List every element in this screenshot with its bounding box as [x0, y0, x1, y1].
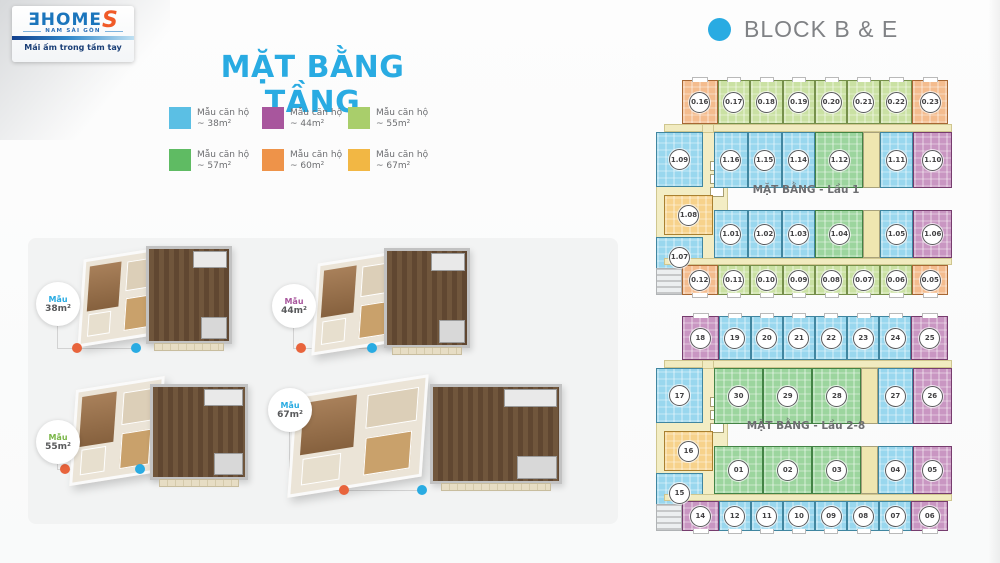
- unit-number: 0.06: [886, 270, 907, 291]
- apartment-unit[interactable]: 20: [751, 316, 783, 360]
- legend-item: Mẫu căn hộ ~ 38m²: [169, 107, 262, 149]
- legend-color-swatch: [169, 149, 191, 171]
- model-55m2: Mẫu 55m²: [28, 238, 618, 524]
- apartment-unit[interactable]: 08: [847, 501, 879, 531]
- apartment-unit[interactable]: 0.18: [750, 80, 782, 124]
- apartment-unit[interactable]: 0.12: [682, 265, 718, 295]
- apartment-unit[interactable]: 1.12: [815, 132, 863, 188]
- service-annex: [656, 268, 682, 295]
- unit-number: 1.12: [829, 150, 850, 171]
- floorplan-lau-2-8: 18 19 20 21 22 23 24 25 17 16 15 30 29 2…: [656, 314, 952, 532]
- apartment-unit[interactable]: 1.16: [714, 132, 748, 188]
- unit-number: 28: [826, 386, 847, 407]
- apartment-unit[interactable]: 09: [815, 501, 847, 531]
- model-67-2d-plan: [430, 384, 562, 484]
- unit-number: 1.01: [720, 224, 741, 245]
- apartment-unit[interactable]: 0.09: [783, 265, 815, 295]
- unit-number: 21: [788, 328, 809, 349]
- blue-marker-dot: [367, 343, 377, 353]
- apartment-unit[interactable]: 1.02: [748, 210, 782, 258]
- unit-number: 0.22: [886, 92, 907, 113]
- unit-number: 17: [669, 385, 690, 406]
- apartment-unit[interactable]: 1.10: [913, 132, 952, 188]
- legend-label: Mẫu căn hộ ~ 38m²: [197, 107, 249, 130]
- unit-number: 1.09: [669, 149, 690, 170]
- apartment-unit[interactable]: 0.06: [880, 265, 912, 295]
- unit-number: 20: [756, 328, 777, 349]
- connector-line: [57, 464, 58, 470]
- unit-number: 30: [728, 386, 749, 407]
- unit-number: 0.10: [756, 270, 777, 291]
- unit-row-lower: 1.01 1.02 1.03 1.04 1.05 1.06: [714, 210, 952, 258]
- unit-number: 1.03: [788, 224, 809, 245]
- unit-number: 0.05: [920, 270, 941, 291]
- logo-region-text: NAM SÀI GÒN: [45, 28, 100, 34]
- unit-number: 15: [669, 483, 690, 504]
- apartment-unit[interactable]: 18: [682, 316, 719, 360]
- unit-number: 04: [885, 460, 906, 481]
- unit-number: 29: [777, 386, 798, 407]
- unit-number: 1.07: [669, 247, 690, 268]
- apartment-unit[interactable]: 0.07: [847, 265, 879, 295]
- model-38m2: Mẫu 38m²: [28, 238, 618, 524]
- model-44m2: Mẫu 44m²: [28, 238, 618, 524]
- legend-label: Mẫu căn hộ ~ 60m²: [290, 149, 342, 172]
- apartment-unit[interactable]: 06: [911, 501, 948, 531]
- unit-number: 23: [853, 328, 874, 349]
- apartment-unit[interactable]: 1.11: [880, 132, 914, 188]
- unit-number: 18: [690, 328, 711, 349]
- unit-number: 14: [690, 506, 711, 527]
- apartment-unit[interactable]: [863, 132, 879, 188]
- legend-color-swatch: [169, 107, 191, 129]
- legend-color-swatch: [348, 107, 370, 129]
- unit-number: 0.12: [689, 270, 710, 291]
- apartment-unit[interactable]: 02: [763, 446, 812, 494]
- floorplan-lau-1: 0.16 0.17 0.18 0.19 0.20 0.21 0.22 0.23 …: [656, 78, 952, 296]
- apartment-unit[interactable]: 10: [783, 501, 815, 531]
- apartment-unit[interactable]: 30: [714, 368, 763, 424]
- apartment-unit[interactable]: 1.06: [913, 210, 952, 258]
- unit-number: 0.23: [920, 92, 941, 113]
- apartment-unit[interactable]: 0.21: [847, 80, 879, 124]
- model-44-3d-view: [311, 250, 400, 355]
- legend-item: Mẫu căn hộ ~ 60m²: [262, 149, 348, 191]
- legend-label: Mẫu căn hộ ~ 55m²: [376, 107, 428, 130]
- apartment-unit[interactable]: 24: [879, 316, 911, 360]
- apartment-unit[interactable]: 26: [913, 368, 952, 424]
- unit-number: 1.14: [788, 150, 809, 171]
- apartment-unit[interactable]: 1.01: [714, 210, 748, 258]
- unit-number: 1.11: [886, 150, 907, 171]
- apartment-unit[interactable]: 29: [763, 368, 812, 424]
- model-badge-area: 67m²: [277, 410, 303, 420]
- corridor: [664, 258, 952, 265]
- legend: Mẫu căn hộ ~ 38m² Mẫu căn hộ ~ 44m² Mẫu …: [169, 107, 443, 191]
- unit-number: 02: [777, 460, 798, 481]
- unit-number: 26: [922, 386, 943, 407]
- model-badge-label: Mẫu: [48, 433, 67, 442]
- legend-label: Mẫu căn hộ ~ 57m²: [197, 149, 249, 172]
- unit-number: 0.07: [853, 270, 874, 291]
- unit-row-bottom: 14 12 11 10 09 08 07 06: [682, 501, 948, 531]
- apartment-unit[interactable]: 1.04: [815, 210, 863, 258]
- unit-number: 12: [724, 506, 745, 527]
- connector-line: [289, 490, 423, 491]
- background-edge-shade: [988, 0, 1000, 563]
- legend-label: Mẫu căn hộ ~ 44m²: [290, 107, 342, 130]
- apartment-unit[interactable]: [863, 210, 879, 258]
- unit-number: 03: [826, 460, 847, 481]
- model-67-badge: Mẫu 67m²: [268, 388, 312, 432]
- service-annex: [656, 504, 682, 531]
- apartment-unit[interactable]: 1.08: [664, 195, 713, 235]
- connector-line: [293, 328, 294, 348]
- apartment-models-panel: Mẫu 38m² Mẫu 44m² Mẫu 55m²: [28, 238, 618, 524]
- unit-number: 01: [728, 460, 749, 481]
- unit-number: 09: [821, 506, 842, 527]
- apartment-unit[interactable]: 07: [879, 501, 911, 531]
- apartment-unit[interactable]: [861, 368, 878, 424]
- floor-caption: MẶT BẰNG - Lầu 1: [726, 184, 886, 196]
- apartment-unit[interactable]: 03: [812, 446, 861, 494]
- unit-number: 1.05: [886, 224, 907, 245]
- legend-color-swatch: [262, 149, 284, 171]
- ehome-logo: ƎHOMES NAM SÀI GÒN Mái ấm trong tầm tay: [12, 6, 134, 62]
- legend-item: Mẫu căn hộ ~ 55m²: [348, 107, 443, 149]
- orange-marker-dot: [296, 343, 306, 353]
- unit-number: 0.11: [723, 270, 744, 291]
- apartment-unit[interactable]: 01: [714, 446, 763, 494]
- orange-marker-dot: [60, 464, 70, 474]
- apartment-unit[interactable]: 16: [664, 431, 713, 471]
- unit-number: 0.08: [821, 270, 842, 291]
- apartment-unit[interactable]: 1.14: [782, 132, 816, 188]
- unit-number: 05: [922, 460, 943, 481]
- apartment-unit[interactable]: 27: [878, 368, 913, 424]
- logo-tagline: Mái ấm trong tầm tay: [12, 43, 134, 52]
- apartment-unit[interactable]: 0.17: [718, 80, 750, 124]
- apartment-unit[interactable]: 12: [719, 501, 751, 531]
- model-badge-area: 55m²: [45, 442, 71, 452]
- model-badge-label: Mẫu: [284, 297, 303, 306]
- apartment-unit[interactable]: 0.20: [815, 80, 847, 124]
- unit-row-upper: 30 29 28 27 26: [714, 368, 952, 424]
- connector-line: [57, 469, 141, 470]
- block-bullet-icon: [708, 18, 731, 41]
- unit-number: 1.08: [678, 205, 699, 226]
- model-55-2d-plan: [150, 384, 248, 480]
- corridor: [664, 494, 952, 501]
- orange-marker-dot: [339, 485, 349, 495]
- logo-brand-text: ƎHOME: [28, 11, 102, 29]
- apartment-unit[interactable]: 23: [847, 316, 879, 360]
- apartment-unit[interactable]: 11: [751, 501, 783, 531]
- apartment-unit[interactable]: 1.05: [880, 210, 914, 258]
- unit-number: 27: [885, 386, 906, 407]
- apartment-unit[interactable]: 22: [815, 316, 847, 360]
- unit-number: 0.20: [821, 92, 842, 113]
- model-67m2: Mẫu 67m²: [28, 238, 618, 524]
- apartment-unit[interactable]: 0.05: [912, 265, 948, 295]
- unit-number: 11: [756, 506, 777, 527]
- apartment-unit[interactable]: 28: [812, 368, 861, 424]
- model-55-badge: Mẫu 55m²: [36, 420, 80, 464]
- connector-line: [289, 432, 290, 490]
- apartment-unit[interactable]: 1.15: [748, 132, 782, 188]
- unit-row-top: 18 19 20 21 22 23 24 25: [682, 316, 948, 360]
- blue-marker-dot: [131, 343, 141, 353]
- legend-item: Mẫu căn hộ ~ 67m²: [348, 149, 443, 191]
- legend-color-swatch: [348, 149, 370, 171]
- unit-row-top: 0.16 0.17 0.18 0.19 0.20 0.21 0.22 0.23: [682, 80, 948, 124]
- unit-number: 19: [724, 328, 745, 349]
- logo-gradient-bar: [12, 36, 134, 40]
- legend-color-swatch: [262, 107, 284, 129]
- block-header: BLOCK B & E: [708, 16, 898, 43]
- unit-row-upper: 1.16 1.15 1.14 1.12 1.11 1.10: [714, 132, 952, 188]
- apartment-unit[interactable]: 0.22: [880, 80, 912, 124]
- apartment-unit[interactable]: 0.23: [912, 80, 948, 124]
- model-badge-label: Mẫu: [48, 295, 67, 304]
- apartment-unit[interactable]: 0.10: [750, 265, 782, 295]
- model-55-3d-view: [69, 376, 165, 486]
- model-38-3d-view: [77, 247, 164, 348]
- unit-number: 07: [885, 506, 906, 527]
- unit-number: 0.21: [853, 92, 874, 113]
- apartment-unit[interactable]: 25: [911, 316, 948, 360]
- legend-label: Mẫu căn hộ ~ 67m²: [376, 149, 428, 172]
- unit-number: 25: [919, 328, 940, 349]
- unit-number: 1.06: [922, 224, 943, 245]
- unit-number: 08: [853, 506, 874, 527]
- apartment-unit[interactable]: 1.03: [782, 210, 816, 258]
- unit-number: 10: [788, 506, 809, 527]
- apartment-unit[interactable]: 05: [913, 446, 952, 494]
- model-badge-label: Mẫu: [280, 401, 299, 410]
- unit-number: 1.04: [829, 224, 850, 245]
- unit-number: 0.09: [788, 270, 809, 291]
- apartment-unit[interactable]: 0.08: [815, 265, 847, 295]
- unit-number: 1.02: [754, 224, 775, 245]
- unit-number: 0.18: [756, 92, 777, 113]
- legend-item: Mẫu căn hộ ~ 44m²: [262, 107, 348, 149]
- model-38-badge: Mẫu 38m²: [36, 282, 80, 326]
- unit-number: 1.10: [922, 150, 943, 171]
- unit-number: 0.19: [788, 92, 809, 113]
- model-44-2d-plan: [384, 248, 470, 348]
- model-44-badge: Mẫu 44m²: [272, 284, 316, 328]
- model-67-3d-view: [287, 374, 428, 498]
- apartment-unit[interactable]: 0.16: [682, 80, 718, 124]
- model-badge-area: 38m²: [45, 304, 71, 314]
- unit-number: 1.16: [720, 150, 741, 171]
- apartment-unit[interactable]: 0.11: [718, 265, 750, 295]
- unit-number: 24: [885, 328, 906, 349]
- logo-s-accent: S: [102, 14, 118, 28]
- unit-row-lower: 01 02 03 04 05: [714, 446, 952, 494]
- model-badge-area: 44m²: [281, 306, 307, 316]
- apartment-unit[interactable]: 1.09: [656, 132, 703, 187]
- apartment-unit[interactable]: 21: [783, 316, 815, 360]
- unit-number: 16: [678, 441, 699, 462]
- apartment-unit[interactable]: 04: [878, 446, 913, 494]
- unit-number: 0.17: [723, 92, 744, 113]
- apartment-unit[interactable]: 17: [656, 368, 703, 423]
- unit-number: 06: [919, 506, 940, 527]
- unit-row-bottom: 0.12 0.11 0.10 0.09 0.08 0.07 0.06 0.05: [682, 265, 948, 295]
- floor-caption: MẶT BẰNG - Lầu 2-8: [726, 420, 886, 432]
- orange-marker-dot: [72, 343, 82, 353]
- connector-line: [57, 326, 58, 348]
- apartment-unit[interactable]: 19: [719, 316, 751, 360]
- block-title: BLOCK B & E: [744, 16, 898, 43]
- blue-marker-dot: [417, 485, 427, 495]
- unit-number: 22: [821, 328, 842, 349]
- connector-line: [57, 348, 137, 349]
- unit-number: 1.15: [754, 150, 775, 171]
- blue-marker-dot: [135, 464, 145, 474]
- apartment-unit[interactable]: 14: [682, 501, 719, 531]
- apartment-unit[interactable]: [861, 446, 878, 494]
- model-38-2d-plan: [146, 246, 232, 344]
- connector-line: [293, 348, 372, 349]
- apartment-unit[interactable]: 0.19: [783, 80, 815, 124]
- unit-number: 0.16: [689, 92, 710, 113]
- legend-item: Mẫu căn hộ ~ 57m²: [169, 149, 262, 191]
